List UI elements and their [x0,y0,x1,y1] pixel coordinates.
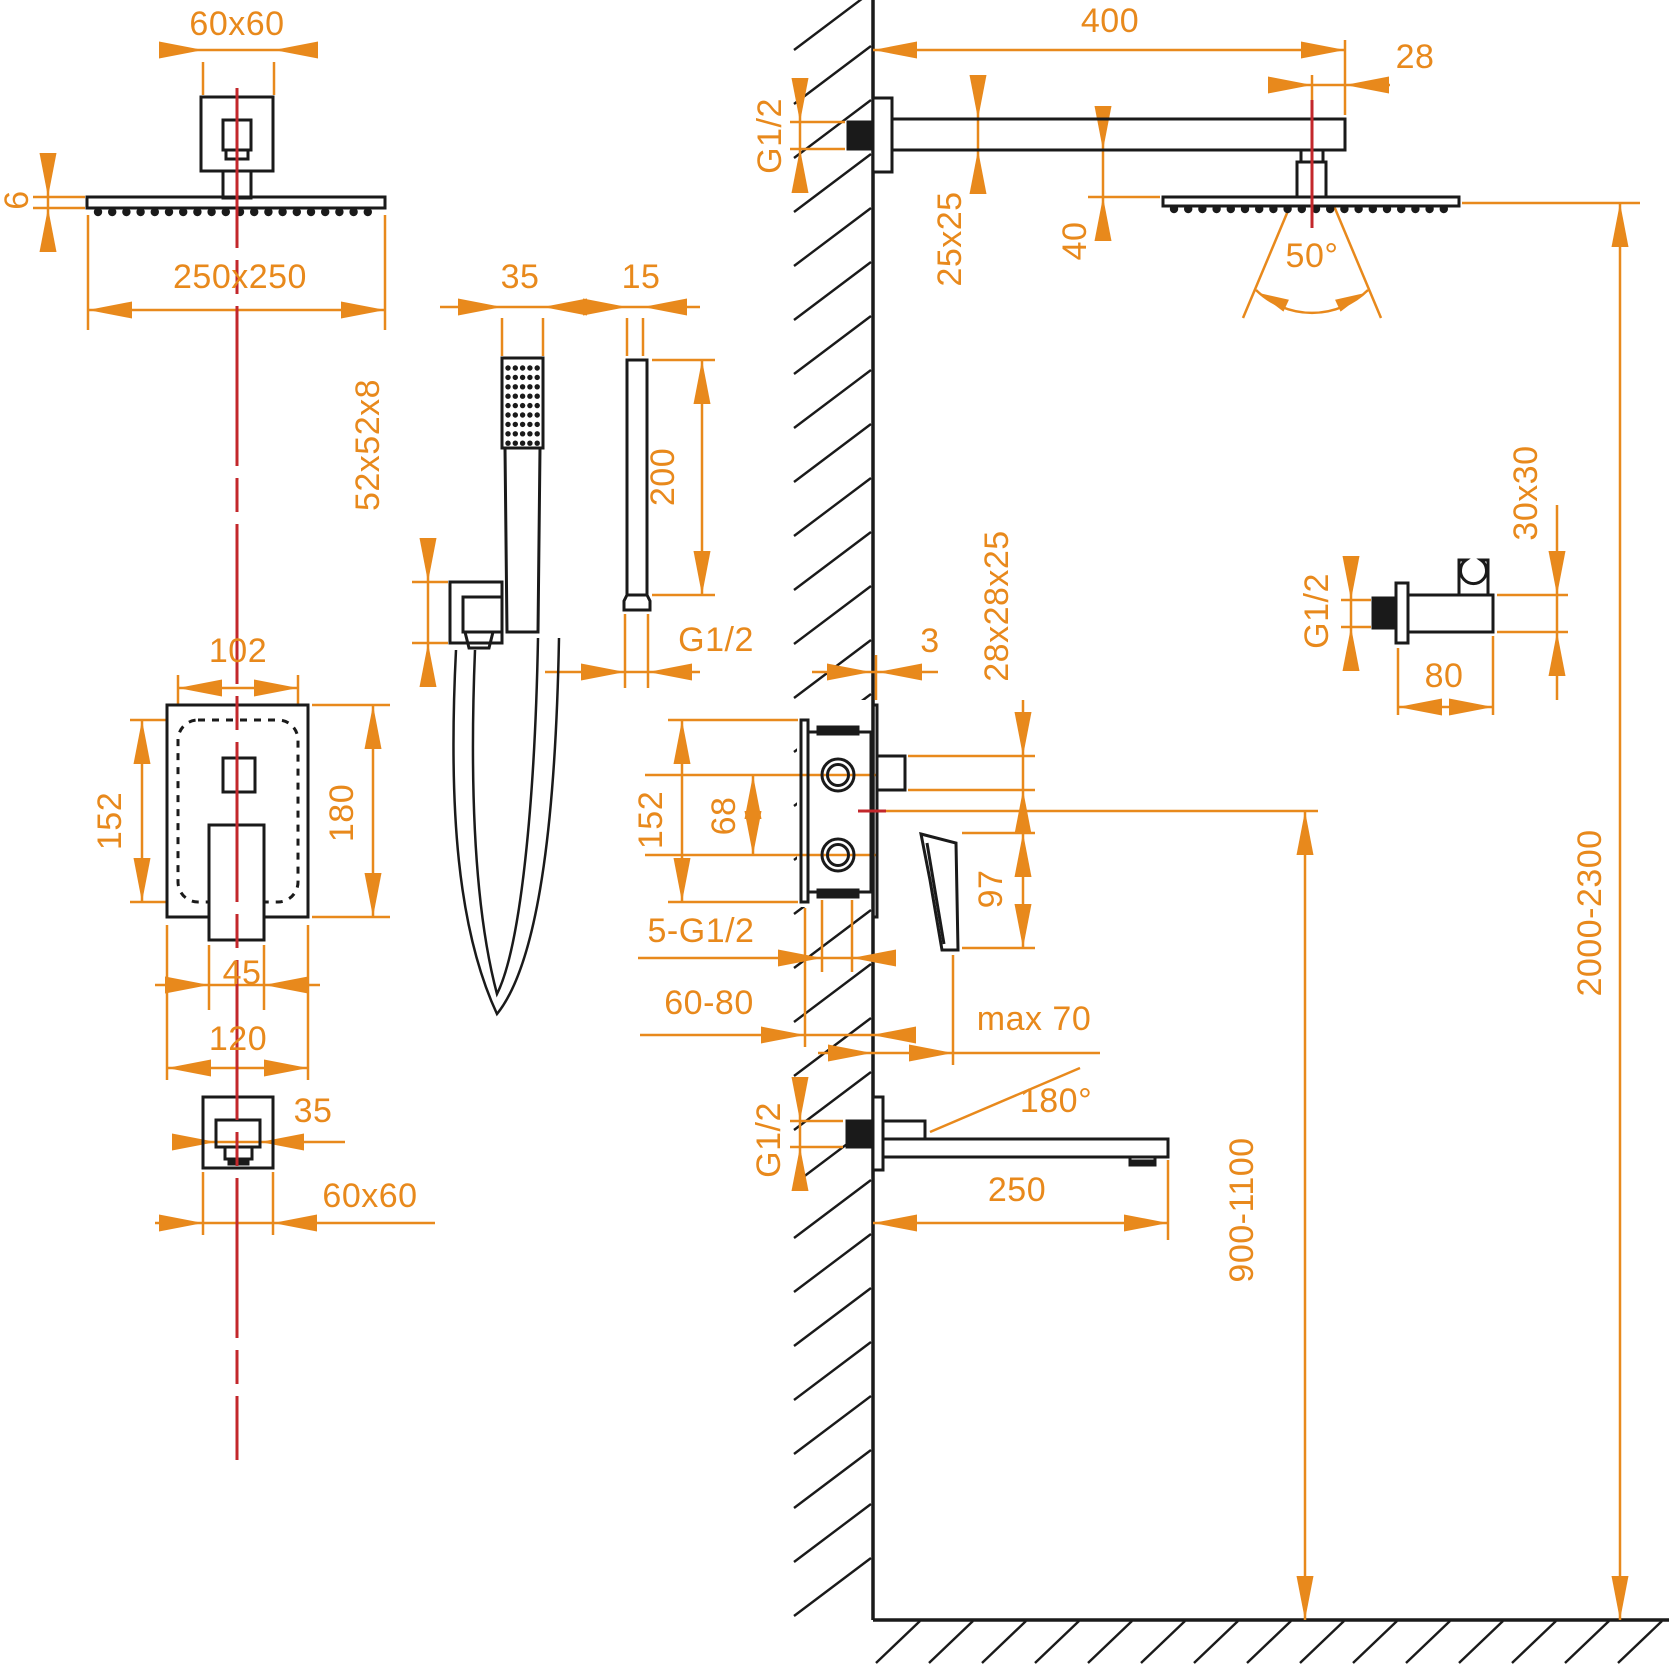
hand-shower-spray-grid [505,365,540,446]
arm-thread-g12 [848,122,871,149]
dim-spout-width-35: 35 [294,1094,333,1128]
diverter-knob-side [877,756,905,790]
shower-installation-diagram [0,0,1669,1664]
dim-hand-length-200: 200 [646,448,680,506]
dim-holder-thread-g12: G1/2 [1300,573,1334,649]
dim-arm-offset-28: 28 [1396,40,1435,74]
dim-knob-28x28x25: 28x28x25 [980,530,1014,681]
floor-hatch-pattern [876,1621,1662,1663]
dim-holder-length-80: 80 [1425,659,1464,693]
dim-holder-30x30: 30x30 [1509,445,1543,540]
dim-handle-length-97: 97 [974,870,1008,909]
dim-valve-spacing-68: 68 [707,797,741,836]
spout-swivel-base [883,1121,925,1139]
dim-head-height-2000-2300: 2000-2300 [1573,829,1607,996]
shower-arm [892,119,1345,150]
shower-hose [453,638,559,1014]
dim-spout-thread-g12: G1/2 [752,1102,786,1178]
dim-plate-width-120: 120 [209,1022,267,1056]
spout-thread-g12 [847,1121,873,1147]
dim-arm-thread-g12: G1/2 [753,98,787,174]
dim-spray-angle-50: 50° [1286,239,1339,273]
dim-connections-5-g12: 5-G1/2 [648,914,755,948]
dim-box-width-102: 102 [209,634,267,668]
dim-ceiling-mount-60x60: 60x60 [189,7,284,41]
hand-shower-handle [505,448,540,632]
dim-spout-swivel-180: 180° [1020,1084,1092,1118]
dim-arm-section-25x25: 25x25 [933,191,967,286]
dim-hand-head-35: 35 [501,260,540,294]
dim-head-250x250: 250x250 [173,260,307,294]
dim-handle-max-70: max 70 [977,1002,1092,1036]
mixer-handle-side [921,834,958,950]
diverter-knob-front [223,758,255,792]
hose-nut [465,632,493,648]
hand-shower-bracket [450,582,502,643]
dim-hand-side-15: 15 [622,260,661,294]
dim-mixer-height-900-1100: 900-1100 [1225,1137,1259,1282]
dim-arm-length-400: 400 [1081,4,1139,38]
dim-head-thickness-6: 6 [0,190,34,209]
dim-bracket-52x52x8: 52x52x8 [351,379,385,511]
dim-spout-length-250: 250 [988,1173,1046,1207]
dim-plate-height-180: 180 [325,784,359,842]
dim-box-height-152-side: 152 [634,791,668,849]
dim-box-height-152-front: 152 [93,792,127,850]
dim-hand-thread-g12: G1/2 [678,623,754,657]
dim-trim-offset-3: 3 [920,624,939,658]
arm-escutcheon [873,98,892,172]
dim-drop-40: 40 [1058,222,1092,261]
blueprint-page: 60x60 6 250x250 35 15 52x52x8 200 G1/2 1… [0,0,1669,1664]
holder-thread-g12 [1373,598,1396,628]
dim-embed-depth-60-80: 60-80 [664,986,753,1020]
holder-escutcheon [1396,583,1408,643]
tub-spout [883,1139,1168,1157]
dim-handle-width-45: 45 [223,956,262,990]
holder-body [1408,595,1493,632]
dim-spout-plate-60x60: 60x60 [322,1179,417,1213]
holder-clip [1459,560,1488,595]
